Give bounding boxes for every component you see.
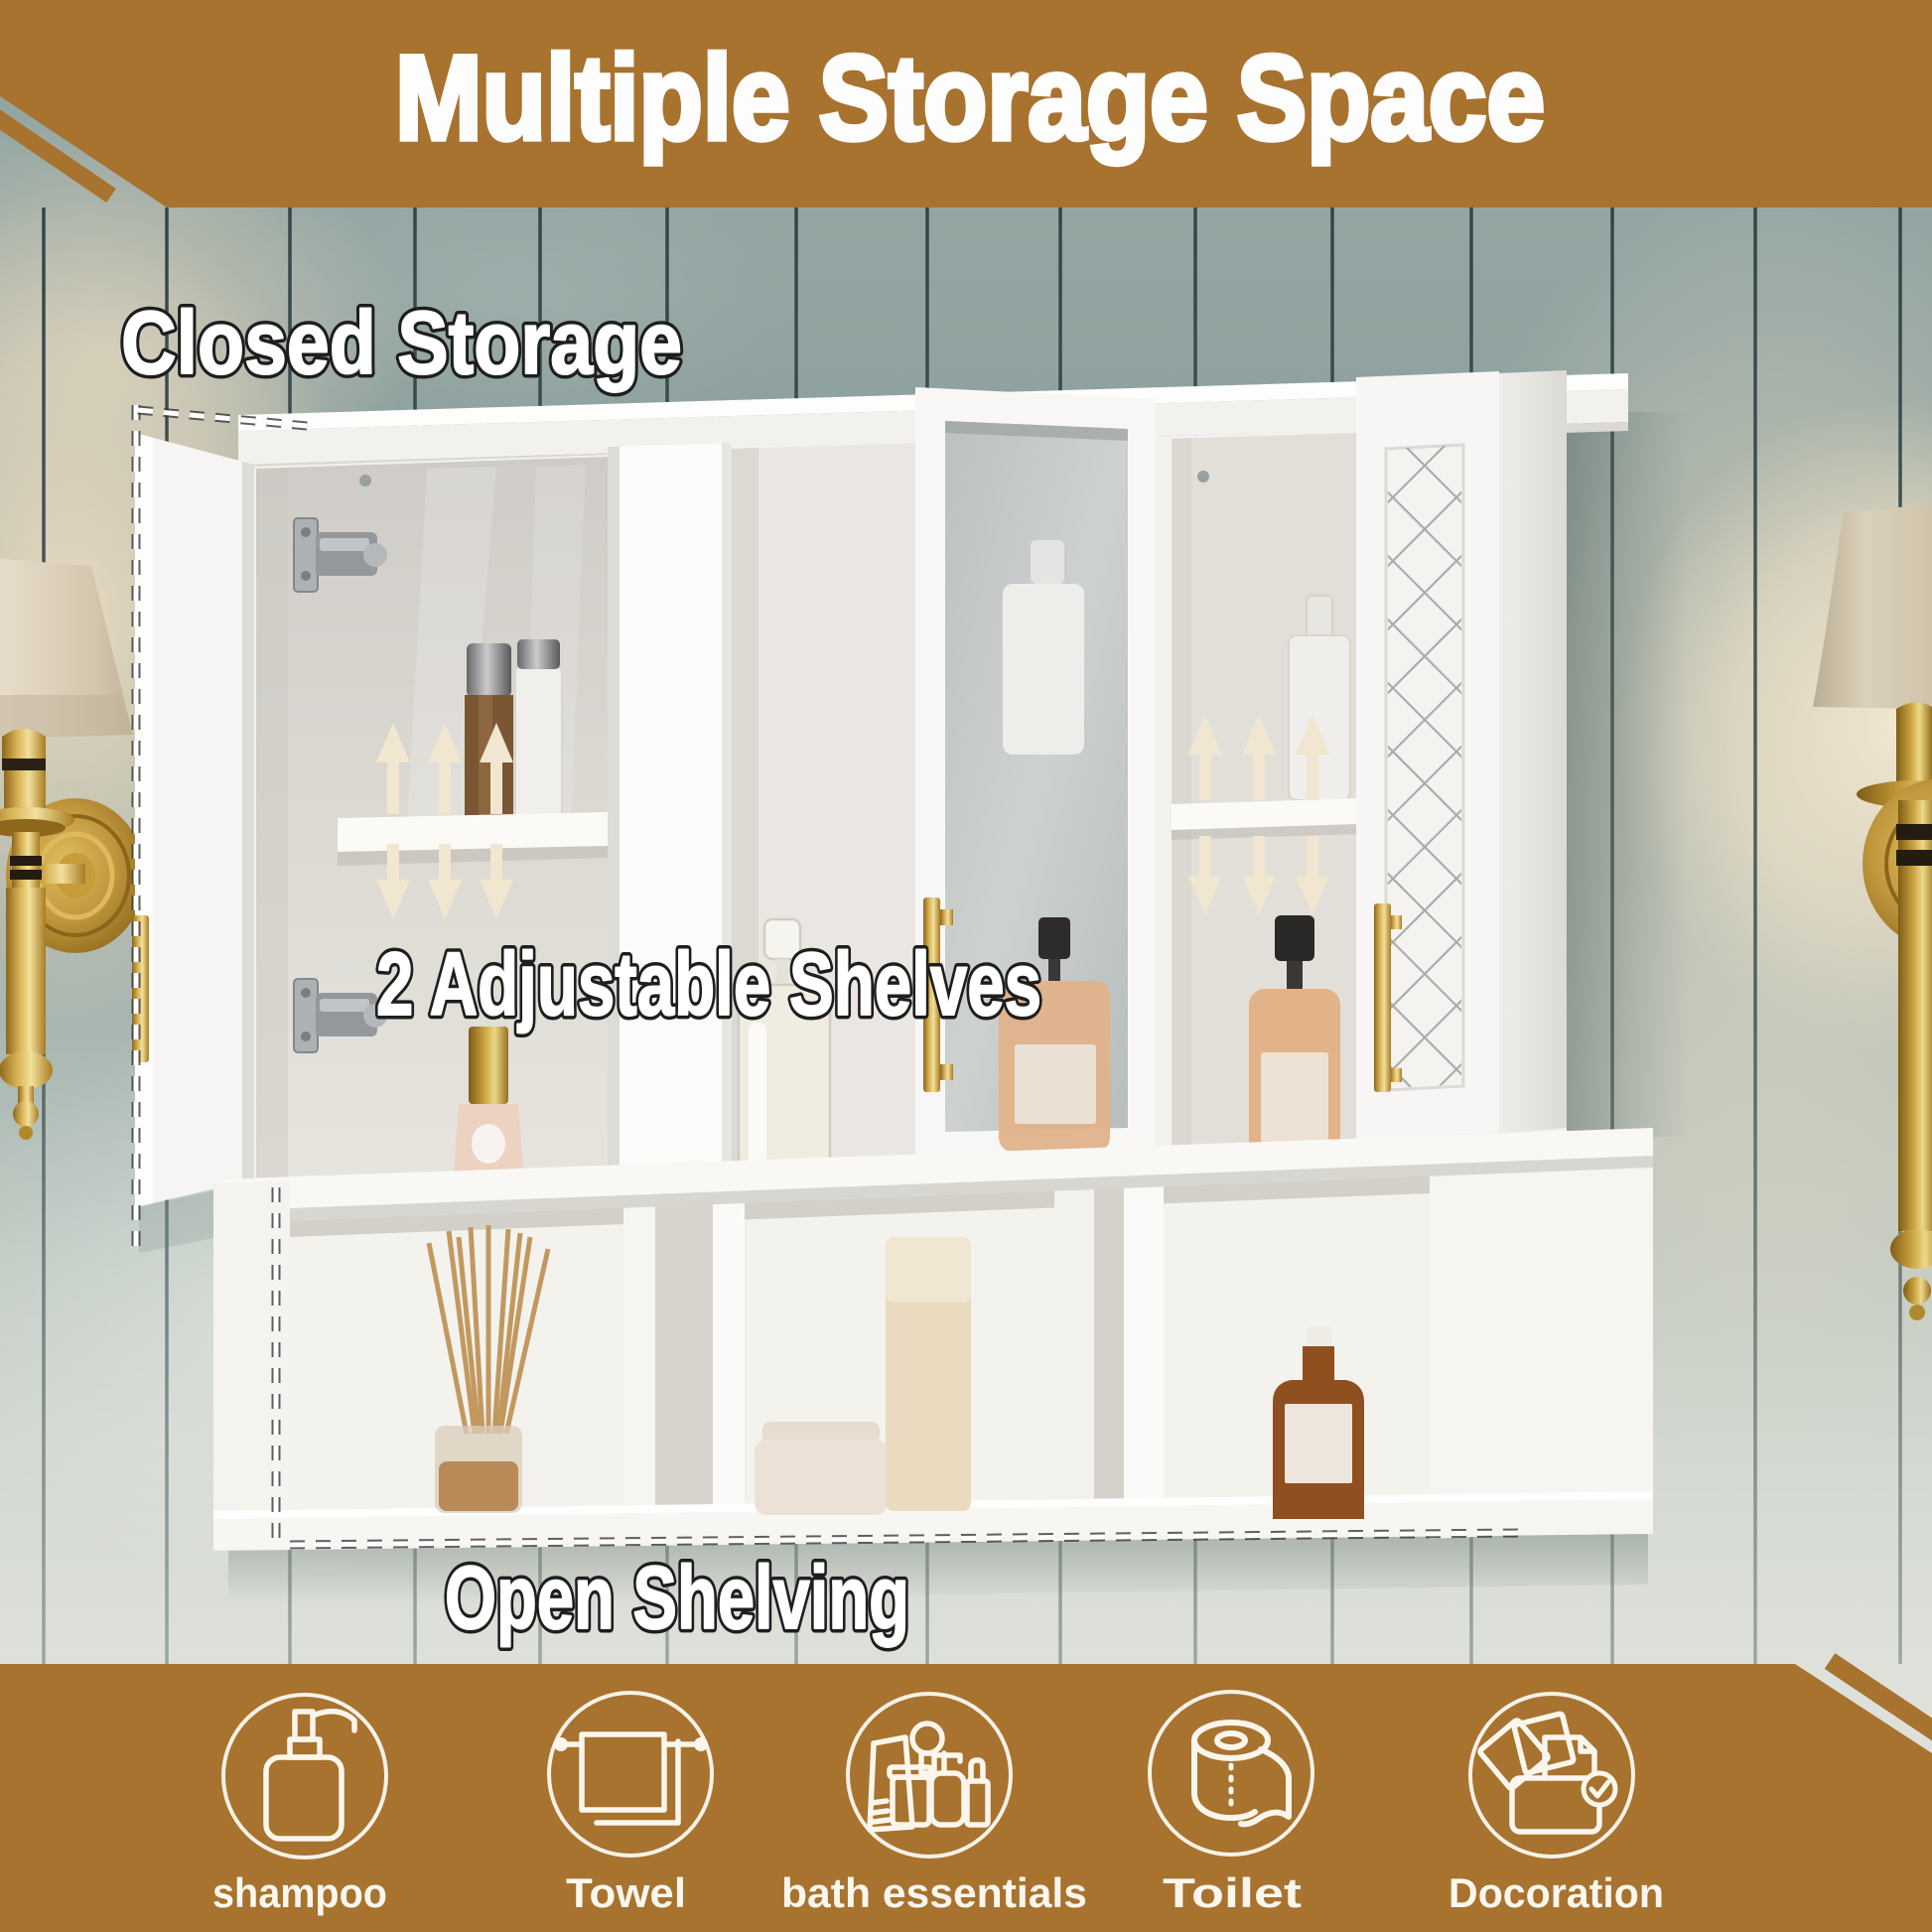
svg-text:bath essentials: bath essentials [781,1869,1087,1916]
svg-text:Towel: Towel [566,1869,686,1916]
svg-text:Closed Storage: Closed Storage [121,294,682,393]
svg-text:shampoo: shampoo [212,1869,387,1916]
svg-text:Open Shelving: Open Shelving [445,1549,909,1648]
svg-text:2 Adjustable Shelves: 2 Adjustable Shelves [376,935,1041,1035]
svg-text:Toilet: Toilet [1163,1869,1302,1916]
svg-text:Docoration: Docoration [1449,1869,1664,1916]
svg-text:Multiple Storage Space: Multiple Storage Space [395,30,1545,165]
